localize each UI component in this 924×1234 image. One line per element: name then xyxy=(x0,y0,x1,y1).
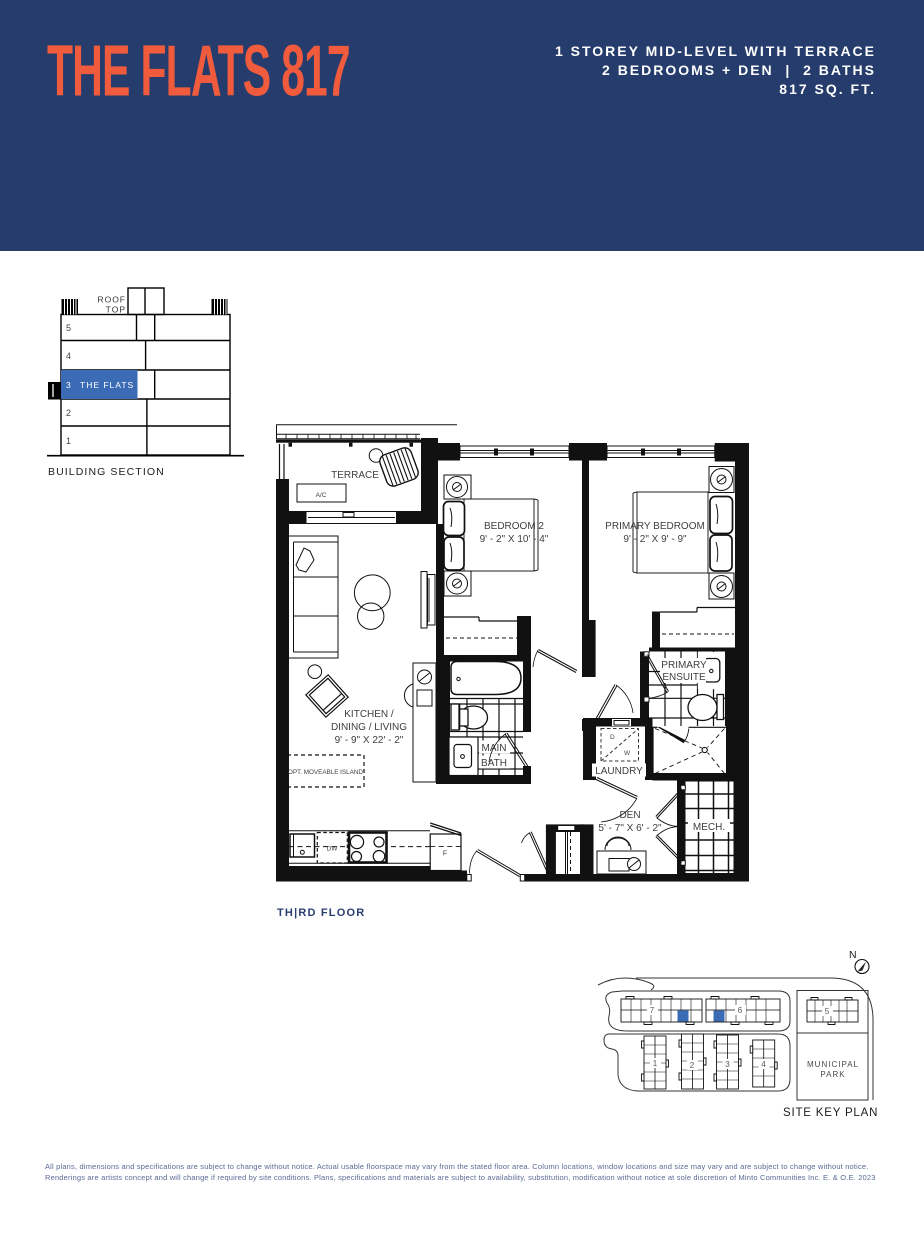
svg-text:MUNICIPAL: MUNICIPAL xyxy=(807,1060,859,1069)
svg-text:6: 6 xyxy=(738,1006,743,1015)
svg-text:5: 5 xyxy=(825,1007,830,1016)
svg-text:2: 2 xyxy=(690,1061,695,1070)
svg-text:3: 3 xyxy=(725,1060,730,1069)
svg-text:7: 7 xyxy=(650,1006,655,1015)
svg-text:1: 1 xyxy=(653,1059,658,1068)
svg-text:4: 4 xyxy=(761,1060,766,1069)
svg-text:PARK: PARK xyxy=(820,1070,845,1079)
svg-text:N: N xyxy=(849,949,857,961)
